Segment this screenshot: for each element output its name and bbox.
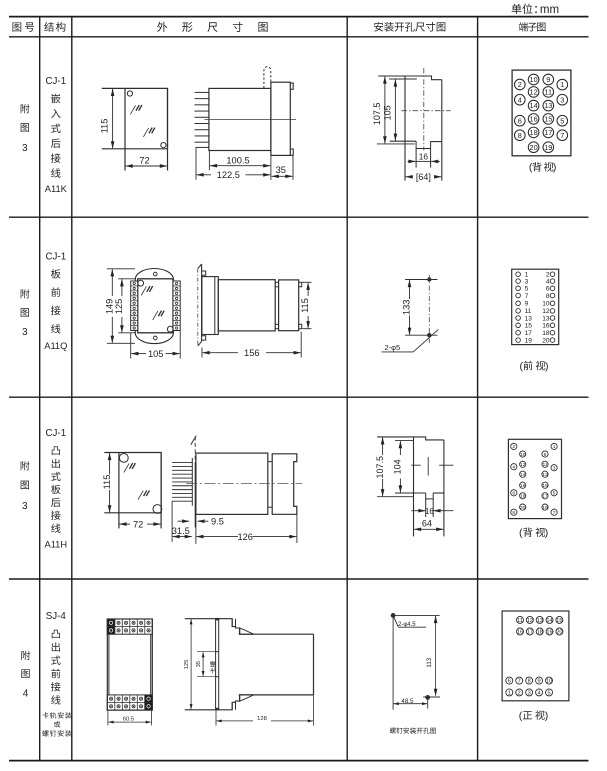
svg-text:5: 5 <box>525 286 529 293</box>
svg-text:18: 18 <box>520 494 526 500</box>
svg-text:7: 7 <box>518 679 521 685</box>
svg-text:SJ-4: SJ-4 <box>46 611 67 622</box>
svg-text:17: 17 <box>544 128 552 137</box>
svg-text:13: 13 <box>542 472 548 478</box>
svg-text:9: 9 <box>546 75 550 84</box>
svg-text:2: 2 <box>518 80 522 89</box>
svg-text:107.5: 107.5 <box>372 103 382 126</box>
svg-text:8: 8 <box>528 679 531 685</box>
svg-text:133: 133 <box>402 300 412 316</box>
svg-text:18: 18 <box>537 630 543 636</box>
svg-text:10: 10 <box>542 301 550 308</box>
svg-text:8: 8 <box>518 131 522 140</box>
svg-text:60.5: 60.5 <box>123 717 134 723</box>
svg-text:128: 128 <box>257 716 267 722</box>
svg-text:2-φ4.5: 2-φ4.5 <box>398 622 416 628</box>
svg-text:3: 3 <box>553 465 556 471</box>
svg-text:18: 18 <box>530 128 538 137</box>
svg-text:5: 5 <box>560 116 564 125</box>
svg-text:(: ( <box>520 360 524 372</box>
svg-text:11: 11 <box>542 462 547 468</box>
svg-text:11: 11 <box>525 308 532 315</box>
svg-text:5: 5 <box>553 491 556 497</box>
svg-text:[64]: [64] <box>416 172 431 182</box>
svg-text:16: 16 <box>517 630 523 636</box>
svg-text:18: 18 <box>542 330 550 337</box>
svg-text:mm: mm <box>540 4 559 16</box>
svg-text:125: 125 <box>184 660 190 670</box>
svg-text:20: 20 <box>530 143 538 152</box>
svg-text:104: 104 <box>392 459 402 474</box>
svg-text:6: 6 <box>512 491 515 497</box>
svg-text:19: 19 <box>525 337 533 344</box>
svg-text:6: 6 <box>518 116 522 125</box>
svg-text:2: 2 <box>512 444 515 450</box>
svg-text:31.5: 31.5 <box>172 526 190 536</box>
svg-text:): ) <box>545 710 549 722</box>
svg-text:A11Q: A11Q <box>44 341 67 351</box>
svg-text:4: 4 <box>512 464 515 470</box>
svg-text:17: 17 <box>525 330 533 337</box>
svg-text:3: 3 <box>528 690 531 696</box>
svg-text:(: ( <box>529 162 533 174</box>
svg-text:12: 12 <box>530 88 538 97</box>
svg-text:13: 13 <box>544 101 552 110</box>
svg-text:1: 1 <box>553 444 556 450</box>
svg-text:3: 3 <box>525 278 529 285</box>
svg-text:15: 15 <box>556 618 562 624</box>
svg-text:7: 7 <box>553 510 556 516</box>
svg-text:3: 3 <box>22 143 28 154</box>
svg-text:12: 12 <box>520 462 526 468</box>
svg-text:17: 17 <box>542 494 548 500</box>
svg-text:6: 6 <box>508 679 511 685</box>
svg-text:149: 149 <box>104 299 114 315</box>
svg-text:17: 17 <box>527 630 533 636</box>
svg-text:64: 64 <box>422 519 432 529</box>
svg-text:19: 19 <box>546 630 552 636</box>
svg-text:35: 35 <box>196 661 202 667</box>
svg-text:13: 13 <box>537 618 543 624</box>
svg-text:122.5: 122.5 <box>217 170 240 180</box>
svg-text:14: 14 <box>530 101 538 110</box>
svg-text:2-φ5: 2-φ5 <box>384 343 400 352</box>
svg-text:4: 4 <box>518 95 522 104</box>
svg-text:20: 20 <box>520 505 526 511</box>
svg-text:9.5: 9.5 <box>211 517 224 527</box>
svg-text:10: 10 <box>520 452 526 458</box>
svg-text:6: 6 <box>546 286 550 293</box>
svg-text:(: ( <box>519 527 523 539</box>
svg-text:11: 11 <box>545 88 553 97</box>
svg-text:115: 115 <box>300 298 310 313</box>
svg-text:13: 13 <box>542 315 550 322</box>
svg-text:10: 10 <box>530 75 538 84</box>
svg-text:72: 72 <box>139 156 149 166</box>
svg-text:156: 156 <box>244 348 260 358</box>
svg-text:3: 3 <box>22 501 28 512</box>
svg-text:19: 19 <box>542 505 548 511</box>
svg-text:): ) <box>545 527 549 539</box>
svg-text:16: 16 <box>530 115 538 124</box>
svg-text:16: 16 <box>419 151 429 161</box>
svg-text:9: 9 <box>544 452 547 458</box>
svg-text:105: 105 <box>383 105 393 120</box>
svg-text:115: 115 <box>102 475 112 490</box>
svg-text:20: 20 <box>556 630 562 636</box>
svg-text:100.5: 100.5 <box>226 155 249 165</box>
svg-text:105: 105 <box>148 349 164 359</box>
svg-text:8: 8 <box>546 293 550 300</box>
svg-text:14: 14 <box>520 472 526 478</box>
svg-text:2: 2 <box>518 690 521 696</box>
svg-text:16: 16 <box>425 507 434 516</box>
svg-text:4: 4 <box>23 689 29 700</box>
svg-text:10: 10 <box>546 679 552 685</box>
svg-text:9: 9 <box>525 301 529 308</box>
svg-text:16: 16 <box>520 483 526 489</box>
svg-text:35: 35 <box>276 165 286 175</box>
svg-text:113: 113 <box>426 657 433 667</box>
svg-text:125: 125 <box>114 299 124 315</box>
svg-text:(: ( <box>519 710 523 722</box>
svg-text:16: 16 <box>542 323 550 330</box>
svg-text:126: 126 <box>237 532 253 542</box>
svg-text:15: 15 <box>525 323 533 330</box>
svg-text:3: 3 <box>560 95 564 104</box>
svg-text:7: 7 <box>560 131 564 140</box>
svg-text:A11K: A11K <box>45 184 68 194</box>
svg-text:4: 4 <box>546 278 550 285</box>
svg-text:107.5: 107.5 <box>375 456 385 479</box>
svg-text:): ) <box>545 360 549 372</box>
svg-text:19: 19 <box>544 143 552 152</box>
svg-text:72: 72 <box>133 519 143 529</box>
svg-text:15: 15 <box>542 483 548 489</box>
svg-text:20: 20 <box>542 337 550 344</box>
svg-text:A11H: A11H <box>45 540 68 550</box>
svg-text:1: 1 <box>560 80 564 89</box>
svg-text:7: 7 <box>525 293 529 300</box>
svg-text:13: 13 <box>525 315 533 322</box>
svg-text:15: 15 <box>544 115 552 124</box>
svg-text:): ) <box>553 162 557 174</box>
svg-text:11: 11 <box>517 618 523 624</box>
svg-text:4: 4 <box>538 690 541 696</box>
svg-text:CJ-1: CJ-1 <box>45 428 66 439</box>
svg-text:12: 12 <box>527 618 533 624</box>
svg-text:CJ-1: CJ-1 <box>45 76 66 87</box>
svg-text:14: 14 <box>546 618 552 624</box>
svg-text:115: 115 <box>100 119 110 134</box>
svg-text:CJ-1: CJ-1 <box>45 252 66 263</box>
svg-text:1: 1 <box>508 690 511 696</box>
svg-text:3: 3 <box>22 327 28 338</box>
svg-text:8: 8 <box>512 510 515 516</box>
svg-text:12: 12 <box>542 308 550 315</box>
svg-text:48.5: 48.5 <box>401 698 414 705</box>
svg-text:9: 9 <box>538 679 541 685</box>
svg-text:5: 5 <box>547 690 550 696</box>
